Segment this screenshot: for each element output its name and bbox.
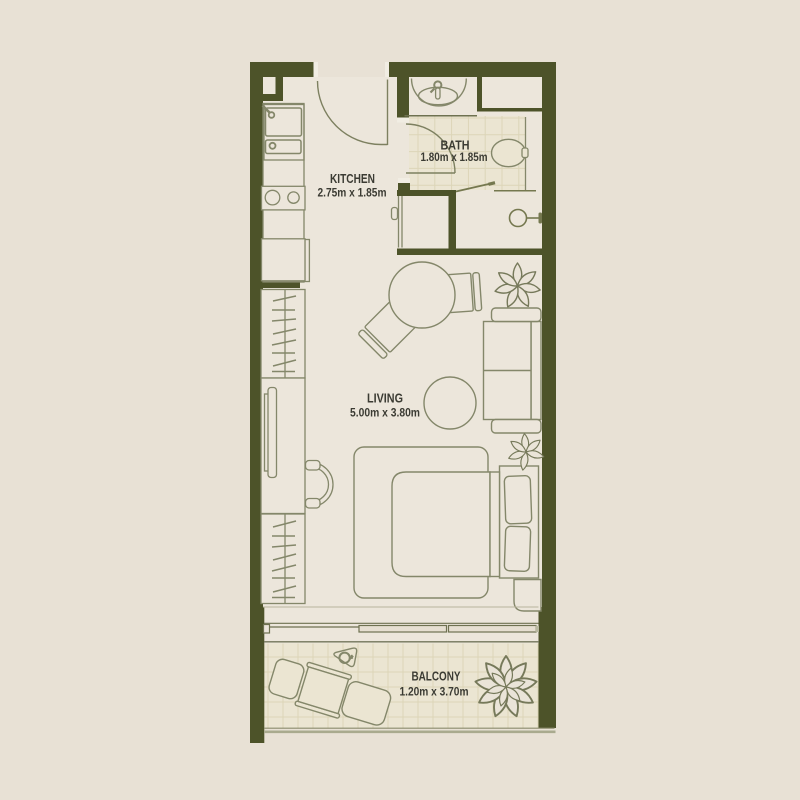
svg-text:LIVING: LIVING	[367, 392, 403, 406]
svg-text:BALCONY: BALCONY	[412, 670, 462, 684]
svg-text:2.75m x 1.85m: 2.75m x 1.85m	[318, 188, 387, 200]
svg-text:5.00m x 3.80m: 5.00m x 3.80m	[350, 408, 420, 420]
svg-text:1.20m x 3.70m: 1.20m x 3.70m	[400, 687, 469, 699]
svg-text:1.80m x 1.85m: 1.80m x 1.85m	[421, 152, 488, 164]
svg-text:BATH: BATH	[441, 139, 470, 153]
svg-text:KITCHEN: KITCHEN	[330, 172, 375, 186]
